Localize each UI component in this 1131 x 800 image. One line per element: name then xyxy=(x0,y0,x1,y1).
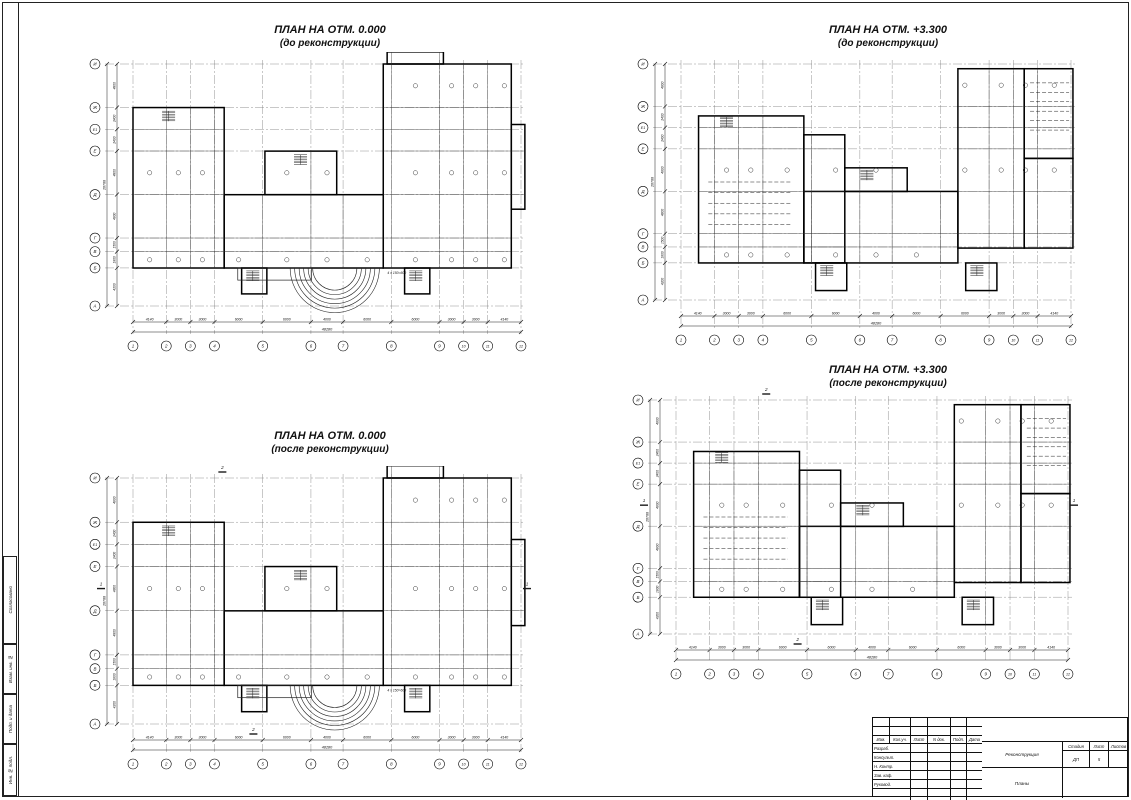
svg-text:4200: 4200 xyxy=(656,612,660,620)
svg-text:Б: Б xyxy=(94,683,97,688)
svg-text:В: В xyxy=(94,666,97,671)
svg-text:Д: Д xyxy=(92,608,96,613)
floor-plan-canvas-000-after: 4 х 150=60041403000300060006000400060006… xyxy=(85,466,533,778)
svg-text:3000: 3000 xyxy=(1022,312,1030,316)
svg-text:4800: 4800 xyxy=(113,169,117,177)
svg-text:Е: Е xyxy=(94,149,97,154)
svg-text:1500: 1500 xyxy=(113,658,117,666)
svg-text:10: 10 xyxy=(462,763,466,767)
svg-text:48280: 48280 xyxy=(322,328,333,332)
svg-text:3000: 3000 xyxy=(747,312,755,316)
role-konsult: Консульт. xyxy=(873,753,911,762)
svg-text:6000: 6000 xyxy=(363,736,371,740)
svg-text:А: А xyxy=(93,722,97,727)
plan-title-line1: ПЛАН НА ОТМ. +3.300 xyxy=(829,24,947,37)
plan-title-3300-after: ПЛАН НА ОТМ. +3.300 (после реконструкции… xyxy=(829,364,947,390)
svg-text:6000: 6000 xyxy=(235,736,243,740)
svg-text:1: 1 xyxy=(643,498,646,503)
side-strip-label: Подп. и дата xyxy=(8,705,13,733)
svg-text:4140: 4140 xyxy=(1050,312,1058,316)
svg-text:11: 11 xyxy=(486,345,490,349)
svg-text:26700: 26700 xyxy=(103,180,107,191)
svg-text:6000: 6000 xyxy=(412,736,420,740)
svg-text:4200: 4200 xyxy=(113,283,117,291)
svg-text:11: 11 xyxy=(486,763,490,767)
plan-title-line1: ПЛАН НА ОТМ. 0.000 xyxy=(274,24,386,37)
svg-text:2: 2 xyxy=(251,727,255,732)
svg-text:В: В xyxy=(637,579,640,584)
svg-text:6000: 6000 xyxy=(912,312,920,316)
svg-text:3000: 3000 xyxy=(718,646,726,650)
svg-text:12: 12 xyxy=(1069,339,1073,343)
svg-text:6000: 6000 xyxy=(412,318,420,322)
svg-text:26700: 26700 xyxy=(651,177,655,188)
plan-title-line1: ПЛАН НА ОТМ. 0.000 xyxy=(271,430,388,443)
svg-text:6000: 6000 xyxy=(828,646,836,650)
svg-text:Д: Д xyxy=(635,524,639,529)
svg-text:3000: 3000 xyxy=(997,312,1005,316)
svg-text:12: 12 xyxy=(519,763,523,767)
svg-text:6000: 6000 xyxy=(783,312,791,316)
col-list: Лист xyxy=(911,736,928,744)
col-podp: Подп. xyxy=(951,736,967,744)
svg-text:2400: 2400 xyxy=(661,134,665,143)
svg-text:Е1: Е1 xyxy=(93,128,97,132)
svg-text:4140: 4140 xyxy=(500,736,508,740)
svg-text:4000: 4000 xyxy=(868,646,876,650)
plan-title-line2: (до реконструкции) xyxy=(274,37,386,50)
svg-text:4140: 4140 xyxy=(689,646,697,650)
svg-text:6000: 6000 xyxy=(909,646,917,650)
svg-text:Б: Б xyxy=(637,595,640,600)
svg-text:4800: 4800 xyxy=(656,501,660,509)
svg-text:3000: 3000 xyxy=(742,646,750,650)
organization-cell xyxy=(1063,768,1128,798)
svg-text:4800: 4800 xyxy=(113,82,117,90)
svg-text:Е1: Е1 xyxy=(641,126,645,130)
plan-title-000-after: ПЛАН НА ОТМ. 0.000 (после реконструкции) xyxy=(271,430,388,456)
svg-text:4 х 150=600: 4 х 150=600 xyxy=(387,688,406,692)
svg-text:3000: 3000 xyxy=(174,736,182,740)
sheets-label: Листов xyxy=(1109,742,1128,751)
svg-text:Б: Б xyxy=(642,260,645,265)
svg-text:10: 10 xyxy=(462,345,466,349)
svg-text:1500: 1500 xyxy=(656,571,660,579)
doc-title: Планы xyxy=(982,768,1063,798)
svg-text:4800: 4800 xyxy=(113,496,117,504)
plan-title-3300-before: ПЛАН НА ОТМ. +3.300 (до реконструкции) xyxy=(829,24,947,50)
svg-text:Е1: Е1 xyxy=(636,462,640,466)
side-strip-vzam-inv: Взам. инв. № xyxy=(3,644,17,694)
svg-text:3000: 3000 xyxy=(994,646,1002,650)
svg-text:Д: Д xyxy=(92,192,96,197)
svg-text:4800: 4800 xyxy=(656,543,660,551)
side-strip-label: Инв. № подл. xyxy=(8,756,13,784)
svg-text:6000: 6000 xyxy=(283,736,291,740)
svg-text:6000: 6000 xyxy=(779,646,787,650)
svg-text:10: 10 xyxy=(1011,339,1015,343)
svg-text:4000: 4000 xyxy=(323,318,331,322)
col-koluch: Кол.уч. xyxy=(890,736,911,744)
role-zavkaf: Зав. каф. xyxy=(873,771,911,780)
svg-text:3000: 3000 xyxy=(723,312,731,316)
svg-text:12: 12 xyxy=(1066,673,1070,677)
role-nkontr: Н. Контр. xyxy=(873,762,911,771)
floor-plan-canvas-000-before: 4 х 150=60041403000300060006000400060006… xyxy=(85,52,533,360)
svg-text:48280: 48280 xyxy=(871,322,882,326)
svg-text:3000: 3000 xyxy=(1018,646,1026,650)
stage-table: Стадия Лист Листов ДП 5 xyxy=(1063,742,1128,768)
svg-text:1800: 1800 xyxy=(661,251,665,259)
project-name: Реконструкция xyxy=(982,742,1063,768)
svg-text:2: 2 xyxy=(164,344,168,349)
svg-text:1800: 1800 xyxy=(656,585,660,593)
svg-text:1500: 1500 xyxy=(113,241,117,249)
svg-text:Б: Б xyxy=(94,266,97,271)
svg-text:2400: 2400 xyxy=(113,529,117,538)
svg-text:4000: 4000 xyxy=(872,312,880,316)
title-block-main: Реконструкция Стадия Лист Листов ДП 5 Пл… xyxy=(982,718,1128,796)
svg-text:1800: 1800 xyxy=(113,256,117,264)
svg-text:4140: 4140 xyxy=(146,318,154,322)
svg-text:6000: 6000 xyxy=(363,318,371,322)
svg-text:4140: 4140 xyxy=(146,736,154,740)
svg-text:4000: 4000 xyxy=(323,736,331,740)
plan-title-000-before: ПЛАН НА ОТМ. 0.000 (до реконструкции) xyxy=(274,24,386,50)
col-izm: Изм. xyxy=(873,736,890,744)
svg-text:2400: 2400 xyxy=(113,552,117,561)
svg-text:1: 1 xyxy=(1073,498,1076,503)
svg-text:3000: 3000 xyxy=(472,736,480,740)
svg-text:1500: 1500 xyxy=(661,237,665,245)
svg-text:26700: 26700 xyxy=(103,596,107,607)
svg-text:11: 11 xyxy=(1036,339,1040,343)
side-strip-inv-podl: Инв. № подл. xyxy=(3,744,17,796)
title-block: Изм. Кол.уч. Лист N док. Подп. Дата Разр… xyxy=(872,717,1128,797)
svg-text:6000: 6000 xyxy=(283,318,291,322)
side-strip-label: Согласовано xyxy=(8,586,13,613)
svg-text:4800: 4800 xyxy=(113,585,117,593)
svg-text:4140: 4140 xyxy=(694,312,702,316)
svg-text:4800: 4800 xyxy=(661,81,665,89)
floor-plan-canvas-3300-after: 4140300030006000600040006000600030003000… xyxy=(628,388,1080,688)
svg-text:48280: 48280 xyxy=(322,746,333,750)
svg-text:Е: Е xyxy=(637,482,640,487)
svg-text:2: 2 xyxy=(795,637,799,642)
svg-text:4800: 4800 xyxy=(113,629,117,637)
svg-text:4200: 4200 xyxy=(113,701,117,709)
svg-text:11: 11 xyxy=(1033,673,1037,677)
svg-text:10: 10 xyxy=(1008,673,1012,677)
svg-text:В: В xyxy=(94,249,97,254)
object-name-cell xyxy=(982,718,1128,742)
svg-text:Е: Е xyxy=(642,146,645,151)
svg-text:А: А xyxy=(636,632,640,637)
svg-text:4800: 4800 xyxy=(661,209,665,217)
svg-text:6000: 6000 xyxy=(961,312,969,316)
svg-text:1: 1 xyxy=(526,582,529,587)
sheet-label: Лист xyxy=(1090,742,1109,751)
floor-plan-canvas-3300-before: 4140300030006000600040006000600030003000… xyxy=(633,52,1083,354)
role-rukovod: Руковод. xyxy=(873,780,911,789)
plan-title-line2: (после реконструкции) xyxy=(271,443,388,456)
svg-text:В: В xyxy=(642,245,645,250)
stage-label: Стадия xyxy=(1063,742,1090,751)
side-strip-soglasovano: Согласовано xyxy=(3,556,17,644)
col-ndok: N док. xyxy=(928,736,951,744)
svg-text:2400: 2400 xyxy=(656,470,660,479)
svg-text:2: 2 xyxy=(712,338,716,343)
revision-header-row: Изм. Кол.уч. Лист N док. Подп. Дата xyxy=(873,736,982,744)
col-data: Дата xyxy=(967,736,982,744)
svg-text:48280: 48280 xyxy=(867,656,878,660)
svg-text:А: А xyxy=(641,298,645,303)
svg-text:6000: 6000 xyxy=(235,318,243,322)
svg-text:1: 1 xyxy=(100,582,103,587)
svg-text:4 х 150=600: 4 х 150=600 xyxy=(387,271,406,275)
title-block-revision-table: Изм. Кол.уч. Лист N док. Подп. Дата Разр… xyxy=(873,718,982,796)
role-razrab: Разраб. xyxy=(873,744,911,753)
svg-text:3000: 3000 xyxy=(448,736,456,740)
svg-text:3000: 3000 xyxy=(174,318,182,322)
svg-text:4200: 4200 xyxy=(661,278,665,286)
svg-text:2400: 2400 xyxy=(113,115,117,124)
svg-text:12: 12 xyxy=(519,345,523,349)
plan-title-line1: ПЛАН НА ОТМ. +3.300 xyxy=(829,364,947,377)
svg-text:3000: 3000 xyxy=(448,318,456,322)
svg-text:4800: 4800 xyxy=(113,212,117,220)
svg-text:Д: Д xyxy=(640,189,644,194)
svg-text:2: 2 xyxy=(220,466,224,470)
svg-text:4800: 4800 xyxy=(661,166,665,174)
svg-text:2400: 2400 xyxy=(113,136,117,145)
sheets-value xyxy=(1109,751,1128,768)
svg-text:1800: 1800 xyxy=(113,673,117,681)
svg-text:3000: 3000 xyxy=(199,318,207,322)
svg-text:4800: 4800 xyxy=(656,417,660,425)
svg-text:2: 2 xyxy=(764,388,768,392)
svg-text:6000: 6000 xyxy=(832,312,840,316)
plan-title-line2: (до реконструкции) xyxy=(829,37,947,50)
svg-text:6000: 6000 xyxy=(957,646,965,650)
svg-text:4140: 4140 xyxy=(500,318,508,322)
svg-text:2: 2 xyxy=(164,762,168,767)
side-strip-podp-data: Подп. и дата xyxy=(3,694,17,744)
svg-text:Е: Е xyxy=(94,564,97,569)
sheet-number: 5 xyxy=(1090,751,1109,768)
svg-text:26700: 26700 xyxy=(646,512,650,523)
side-strip-label: Взам. инв. № xyxy=(8,655,13,683)
svg-text:А: А xyxy=(93,304,97,309)
svg-text:4140: 4140 xyxy=(1047,646,1055,650)
svg-text:3000: 3000 xyxy=(472,318,480,322)
stage-value: ДП xyxy=(1063,751,1090,768)
svg-text:3000: 3000 xyxy=(199,736,207,740)
svg-text:2400: 2400 xyxy=(661,113,665,122)
svg-text:2400: 2400 xyxy=(656,449,660,458)
drawing-sheet: Согласовано Взам. инв. № Подп. и дата Ин… xyxy=(0,0,1131,800)
svg-text:Е1: Е1 xyxy=(93,543,97,547)
svg-text:2: 2 xyxy=(707,672,711,677)
